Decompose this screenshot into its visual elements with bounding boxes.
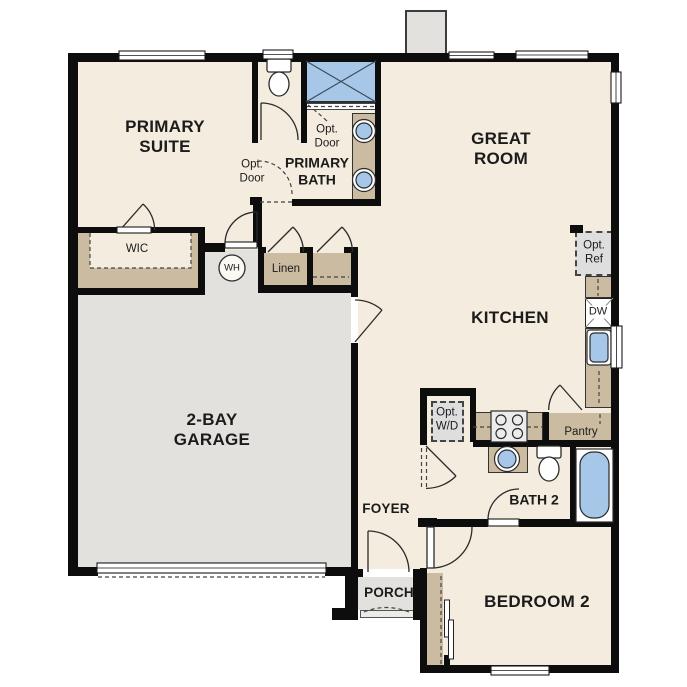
front-door-gap [363, 569, 413, 577]
annotation-opt-door-bath: Opt. Door [231, 158, 273, 185]
bedroom-wing-floor [420, 443, 613, 673]
room-label-primary-bath: PRIMARY BATH [268, 154, 366, 187]
wall-segment [68, 53, 619, 62]
annotation-opt-door-shower: Opt. Door [306, 123, 348, 150]
room-label-pantry: Pantry [564, 426, 597, 440]
wall-segment [325, 567, 358, 576]
annotation-opt-wd: Opt. W/D [426, 406, 468, 433]
wall-segment [344, 247, 358, 253]
wall-segment [292, 199, 381, 206]
wall-segment [375, 62, 381, 203]
wall-segment [470, 388, 476, 442]
wall-segment [570, 225, 583, 233]
wall-segment [68, 567, 98, 576]
wall-segment [151, 227, 205, 233]
room-label-foyer: FOYER [362, 501, 410, 517]
wall-segment [418, 518, 437, 527]
wall-segment [437, 519, 488, 527]
bedroom2-closet [427, 573, 443, 668]
wall-segment [570, 443, 576, 527]
wall-segment [420, 388, 473, 396]
wall-segment [519, 519, 611, 527]
wall-segment [332, 608, 345, 620]
room-label-primary-suite: PRIMARY SUITE [113, 117, 217, 157]
room-label-linen: Linen [272, 263, 300, 277]
wall-segment [345, 576, 358, 620]
room-label-porch: PORCH [364, 585, 414, 601]
annotation-water-heater: WH [224, 262, 240, 273]
room-label-wic: WIC [126, 243, 148, 257]
wall-segment [420, 568, 427, 673]
porch-step [360, 610, 415, 618]
shower-curb [305, 103, 377, 110]
annotation-dishwasher: DW [587, 306, 609, 319]
room-label-kitchen: KITCHEN [471, 308, 549, 328]
shower-icon [305, 60, 377, 103]
wall-segment [68, 53, 78, 576]
wall-segment [252, 62, 258, 143]
wall-segment [68, 288, 205, 295]
room-label-bath2: BATH 2 [509, 492, 559, 509]
garage-entry-door-gap [351, 297, 358, 343]
wall-segment [300, 247, 313, 253]
wall-segment [198, 227, 205, 295]
wall-segment [307, 247, 313, 292]
wall-segment [73, 227, 117, 233]
room-label-bedroom2: BEDROOM 2 [484, 592, 590, 612]
wall-segment [258, 247, 264, 292]
room-label-garage: 2-BAY GARAGE [160, 410, 264, 450]
room-label-great-room: GREAT ROOM [452, 129, 550, 169]
kitchen-stove-counter [473, 412, 543, 442]
wall-segment [473, 440, 613, 447]
wall-segment [611, 53, 619, 673]
wall-segment [444, 655, 450, 672]
wall-segment [253, 197, 262, 247]
chimney [405, 10, 447, 57]
kitchen-counter-upper [585, 276, 613, 298]
floor-plan-canvas: PRIMARY SUITE PRIMARY BATH GREAT ROOM KI… [0, 0, 687, 687]
annotation-opt-ref: Opt. Ref [573, 239, 615, 266]
kitchen-counter-sink-run [585, 328, 613, 408]
wall-segment [258, 247, 266, 253]
bath2-vanity [488, 445, 528, 473]
